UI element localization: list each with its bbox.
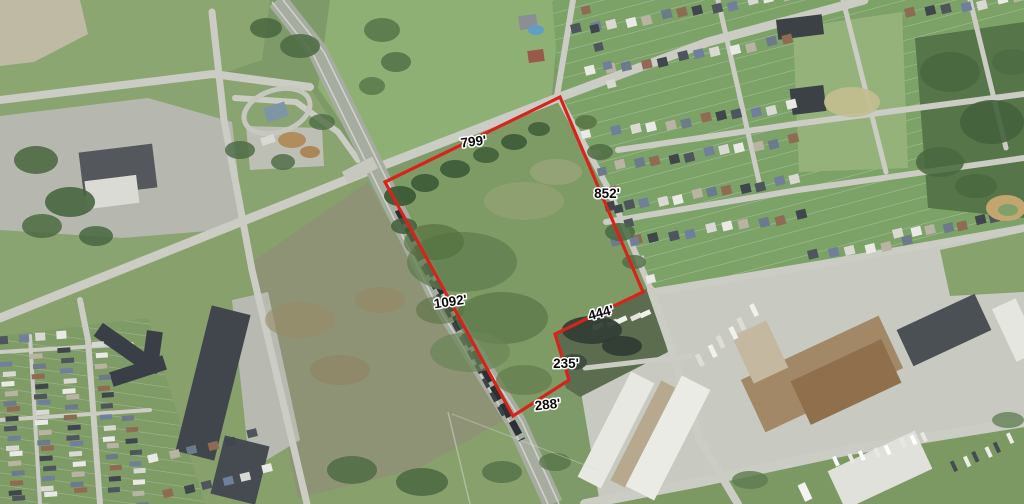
- tree: [920, 52, 980, 92]
- house-row: [98, 385, 110, 391]
- tree: [381, 52, 411, 72]
- house-row: [19, 334, 30, 343]
- tree: [960, 100, 1024, 144]
- house-row: [110, 465, 122, 471]
- house-row: [74, 487, 87, 493]
- tree: [45, 187, 95, 217]
- tree: [575, 115, 597, 129]
- tree: [539, 453, 571, 471]
- field-dark-patch: [404, 224, 464, 260]
- tree: [309, 114, 335, 130]
- house-row: [104, 425, 116, 431]
- house-row: [3, 401, 16, 407]
- tree: [473, 147, 499, 163]
- house-row: [69, 451, 82, 457]
- house-row: [103, 436, 115, 442]
- house-row: [107, 443, 119, 449]
- tree: [482, 461, 522, 483]
- satellite-map-view: 799'852'444'235'288'1092': [0, 0, 1024, 504]
- tree: [992, 412, 1024, 428]
- house-row: [95, 363, 107, 369]
- house-row: [108, 487, 120, 493]
- house-row: [101, 403, 113, 409]
- house-row: [8, 460, 21, 466]
- baseball-infield: [998, 204, 1018, 216]
- house-row: [125, 438, 137, 444]
- house-row: [106, 454, 118, 460]
- house-row: [56, 331, 67, 340]
- scrub-brown-patch: [355, 287, 405, 313]
- house-row: [64, 378, 77, 384]
- house-row: [29, 353, 42, 359]
- field-light-patch: [484, 182, 564, 220]
- house-row: [42, 476, 55, 482]
- tree: [955, 174, 997, 198]
- house-row: [35, 419, 48, 425]
- tree: [411, 174, 439, 192]
- house-row: [35, 384, 48, 390]
- house-row: [41, 445, 54, 451]
- tree: [916, 147, 964, 177]
- park-tan-patch: [824, 87, 880, 117]
- house-row: [38, 430, 51, 436]
- house-row: [10, 480, 23, 486]
- house-row: [66, 394, 79, 400]
- house-row: [39, 455, 52, 461]
- tree: [22, 214, 62, 238]
- house-row: [132, 491, 144, 497]
- tree: [250, 18, 282, 38]
- house-row: [130, 449, 142, 455]
- swimming-pool: [528, 25, 544, 35]
- house-row: [109, 476, 121, 482]
- house-row: [37, 399, 50, 405]
- red-roof-house: [527, 49, 545, 63]
- house-row: [102, 392, 114, 398]
- house-row: [92, 341, 104, 347]
- scrub-brown-patch: [310, 355, 370, 385]
- measurement-label: 235': [553, 356, 579, 371]
- house-row: [5, 391, 18, 397]
- house-row: [61, 357, 74, 363]
- tree: [79, 226, 113, 246]
- house-row: [99, 374, 111, 380]
- house-row: [40, 486, 53, 492]
- house-row: [5, 416, 18, 422]
- house-row: [70, 482, 83, 488]
- tree: [440, 160, 470, 178]
- house-row: [96, 352, 108, 358]
- house-row: [70, 441, 83, 447]
- house-row: [37, 440, 50, 446]
- house-row: [122, 415, 134, 421]
- satellite-map: 799'852'444'235'288'1092': [0, 0, 1024, 504]
- house-row: [36, 409, 49, 415]
- house-row: [35, 332, 46, 341]
- house-row: [44, 491, 57, 497]
- dirt-pile: [278, 132, 306, 148]
- house-row: [43, 465, 56, 471]
- house-row: [60, 368, 73, 374]
- pond: [602, 336, 642, 356]
- field-scrub-patch: [496, 365, 552, 395]
- house-row: [65, 404, 78, 410]
- house-row: [4, 426, 17, 432]
- house-row: [57, 347, 70, 353]
- tree: [364, 18, 400, 42]
- house-row: [126, 427, 138, 433]
- house-row: [7, 435, 20, 441]
- tree: [327, 456, 377, 484]
- house-row: [32, 373, 45, 379]
- tree: [732, 471, 768, 489]
- house-row: [133, 468, 145, 474]
- house-row: [68, 425, 81, 431]
- house-row: [133, 479, 145, 485]
- house-row: [0, 361, 13, 367]
- tree: [501, 134, 527, 150]
- tree: [396, 468, 448, 496]
- house-row: [9, 451, 22, 457]
- house-row: [129, 461, 141, 467]
- field-light-patch: [530, 159, 582, 185]
- measurement-label: 799': [460, 133, 487, 151]
- house-row: [33, 363, 46, 369]
- house-row: [1, 381, 14, 387]
- measurement-label: 288': [534, 396, 561, 414]
- house-row: [0, 336, 8, 345]
- tree: [587, 144, 613, 160]
- house-row: [62, 388, 75, 394]
- house-row: [11, 470, 24, 476]
- house-row: [73, 461, 86, 467]
- house-row: [71, 471, 84, 477]
- house-row: [64, 414, 77, 420]
- tree: [359, 77, 385, 95]
- scrub-brown-patch: [265, 302, 335, 338]
- tree: [225, 141, 255, 159]
- tree: [271, 154, 295, 170]
- tree: [528, 122, 550, 136]
- house-row: [66, 435, 79, 441]
- house-row: [7, 406, 20, 412]
- house-row: [6, 445, 19, 451]
- house-row: [34, 394, 47, 400]
- house-row: [12, 495, 25, 501]
- tree: [280, 34, 320, 58]
- tree: [14, 146, 58, 174]
- dirt-pile: [300, 146, 320, 158]
- house-row: [100, 414, 112, 420]
- house-row: [3, 371, 16, 377]
- house-row: [9, 490, 22, 496]
- measurement-label: 852': [594, 186, 620, 201]
